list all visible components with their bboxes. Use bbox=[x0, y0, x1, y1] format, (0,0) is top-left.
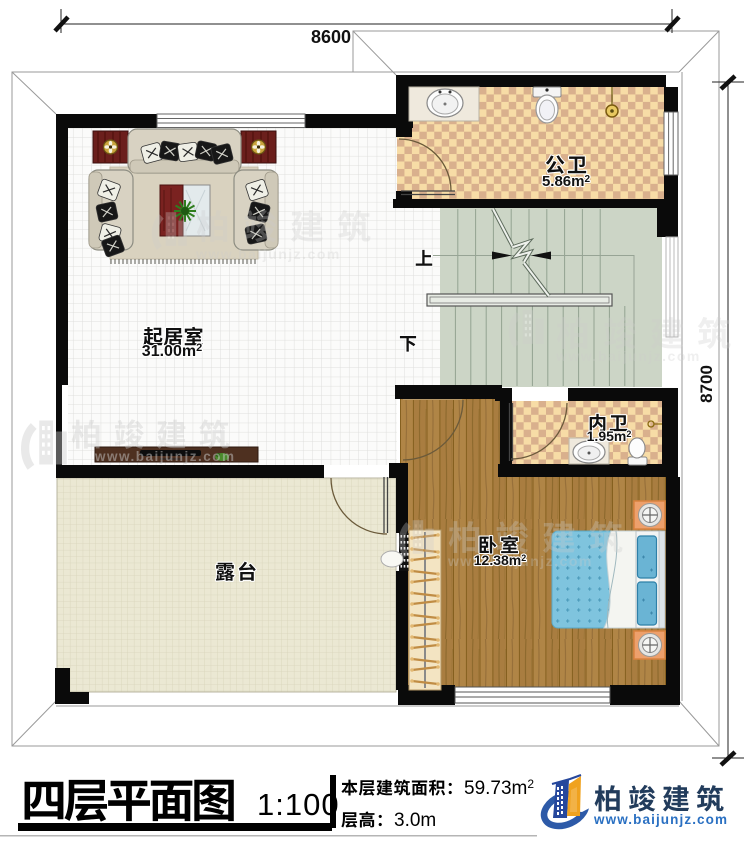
svg-text:8600: 8600 bbox=[311, 27, 351, 47]
svg-text:8700: 8700 bbox=[697, 365, 716, 403]
svg-text:www.baijunjz.com: www.baijunjz.com bbox=[94, 449, 236, 464]
svg-text:59.73m2: 59.73m2 bbox=[464, 777, 534, 799]
svg-text:31.00m2: 31.00m2 bbox=[142, 342, 202, 360]
svg-text:1.95m2: 1.95m2 bbox=[587, 428, 632, 444]
svg-text:5.86m2: 5.86m2 bbox=[542, 173, 591, 190]
svg-text:www.baijunjz.com: www.baijunjz.com bbox=[593, 812, 728, 827]
svg-text:www.baijunjz.com: www.baijunjz.com bbox=[555, 348, 701, 364]
svg-text:12.38m2: 12.38m2 bbox=[474, 552, 527, 568]
svg-text:3.0m: 3.0m bbox=[394, 810, 436, 831]
svg-text:www.baijunjz.com: www.baijunjz.com bbox=[195, 246, 341, 262]
svg-text:1:100: 1:100 bbox=[257, 787, 340, 822]
